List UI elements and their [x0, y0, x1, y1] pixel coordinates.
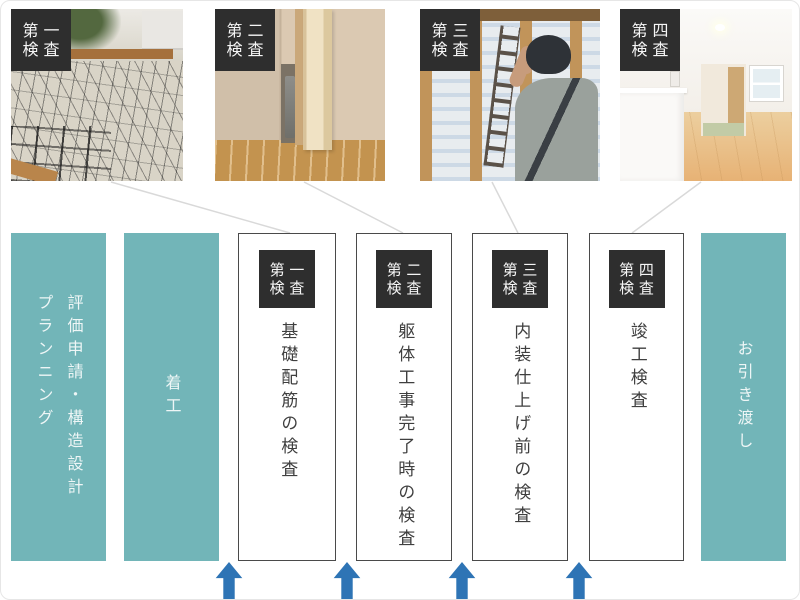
stage-label-line-1: 躯体工事完了時の検査 [394, 322, 414, 552]
badge-row-2: 検 査 [431, 42, 468, 58]
badge-row-2: 検 査 [387, 281, 422, 296]
inspection-3-badge: 第 三 検 査 [492, 250, 548, 308]
stage-label: 内装仕上げ前の検査 [510, 322, 530, 529]
wall-panel-art [670, 71, 681, 87]
up-arrow-icon-3 [448, 562, 476, 600]
stage-inspection-4: 第 四 検 査 竣工検査 [589, 233, 684, 561]
photo-foundation-rebar: 第 一 検 査 [11, 9, 183, 181]
stage-label-line-1: 評価申請・構造設計 [64, 294, 84, 501]
stage-planning-application: 評価申請・構造設計 プランニング [11, 233, 106, 561]
building-art [142, 11, 183, 51]
stage-handover: お引き渡し [701, 233, 786, 561]
badge-row-1: 第 一 [270, 263, 305, 278]
stage-label-line-1: 着工 [162, 374, 182, 420]
stage-inspection-2: 第 二 検 査 躯体工事完了時の検査 [356, 233, 452, 561]
stage-label: 躯体工事完了時の検査 [394, 322, 414, 552]
stage-inspection-3: 第 三 検 査 内装仕上げ前の検査 [472, 233, 568, 561]
inspection-1-photo-badge: 第 一 検 査 [11, 9, 71, 71]
worker-body-art [515, 78, 598, 181]
inspection-4-badge: 第 四 検 査 [609, 250, 665, 308]
badge-row-2: 検 査 [226, 42, 263, 58]
badge-row-2: 検 査 [631, 42, 668, 58]
planter-art [69, 49, 172, 59]
counter-art [620, 93, 684, 181]
badge-row-2: 検 査 [270, 281, 305, 296]
badge-row-1: 第 四 [619, 263, 654, 278]
inspection-3-photo-badge: 第 三 検 査 [420, 9, 480, 71]
stage-label-line-1: 内装仕上げ前の検査 [510, 322, 530, 529]
inspection-4-photo-badge: 第 四 検 査 [620, 9, 680, 71]
stage-label-line-2: プランニング [34, 294, 54, 501]
stage-label-line-1: 基礎配筋の検査 [277, 322, 297, 483]
wood-post-art [303, 9, 332, 150]
metal-hardware-art [285, 76, 295, 138]
stage-construction-start: 着工 [124, 233, 219, 561]
badge-row-1: 第 二 [226, 23, 263, 39]
badge-row-2: 検 査 [503, 281, 538, 296]
badge-row-2: 検 査 [619, 281, 654, 296]
badge-row-2: 検 査 [22, 42, 59, 58]
construction-inspection-flow-diagram: 第 一 検 査 第 二 検 査 第 三 検 査 [0, 0, 800, 600]
stage-label: 着工 [162, 374, 182, 420]
plywood-floor-art [215, 140, 385, 181]
inspection-2-badge: 第 二 検 査 [376, 250, 432, 308]
stage-label-line-1: お引き渡し [734, 340, 754, 455]
up-arrow-icon-2 [333, 562, 361, 600]
stage-label: 基礎配筋の検査 [277, 322, 297, 483]
stage-label: 評価申請・構造設計 プランニング [34, 294, 84, 501]
inspection-1-badge: 第 一 検 査 [259, 250, 315, 308]
badge-row-1: 第 一 [22, 23, 59, 39]
photo-framing-hardware: 第 二 検 査 [215, 9, 385, 181]
badge-row-1: 第 三 [431, 23, 468, 39]
stage-label-line-1: 竣工検査 [626, 322, 646, 414]
badge-row-1: 第 二 [387, 263, 422, 278]
helmet-art [526, 35, 571, 75]
window-art [750, 66, 784, 101]
photo-interior-inspection: 第 三 検 査 [420, 9, 600, 181]
door-art [728, 67, 743, 125]
photo-finished-interior: 第 四 検 査 [620, 9, 792, 181]
inspection-2-photo-badge: 第 二 検 査 [215, 9, 275, 71]
tatami-art [703, 123, 744, 137]
stage-inspection-1: 第 一 検 査 基礎配筋の検査 [238, 233, 336, 561]
badge-row-1: 第 四 [631, 23, 668, 39]
badge-row-1: 第 三 [503, 263, 538, 278]
stage-label: 竣工検査 [626, 322, 646, 414]
stage-label: お引き渡し [734, 340, 754, 455]
up-arrow-icon-4 [565, 562, 593, 600]
up-arrow-icon-1 [215, 562, 243, 600]
